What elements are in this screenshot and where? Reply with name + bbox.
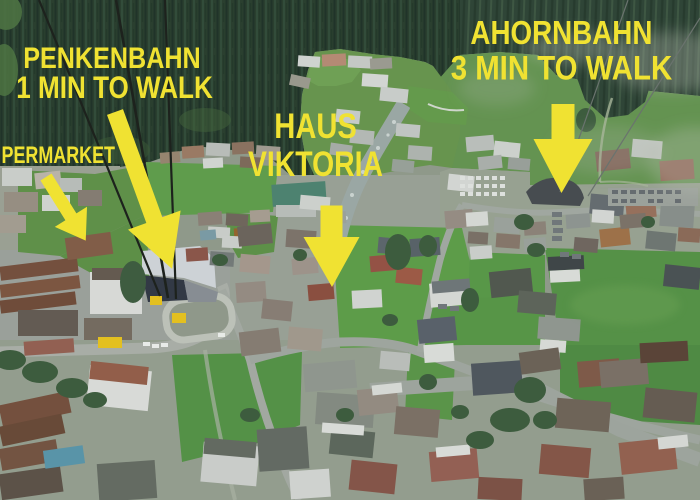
svg-text:AHORNBAHN: AHORNBAHN (470, 15, 652, 52)
svg-text:HAUS: HAUS (274, 107, 357, 146)
svg-text:VIKTORIA: VIKTORIA (248, 145, 383, 184)
svg-text:1 MIN TO WALK: 1 MIN TO WALK (16, 69, 213, 105)
svg-text:PERMARKET: PERMARKET (2, 142, 116, 169)
svg-text:3 MIN TO WALK: 3 MIN TO WALK (451, 50, 673, 88)
